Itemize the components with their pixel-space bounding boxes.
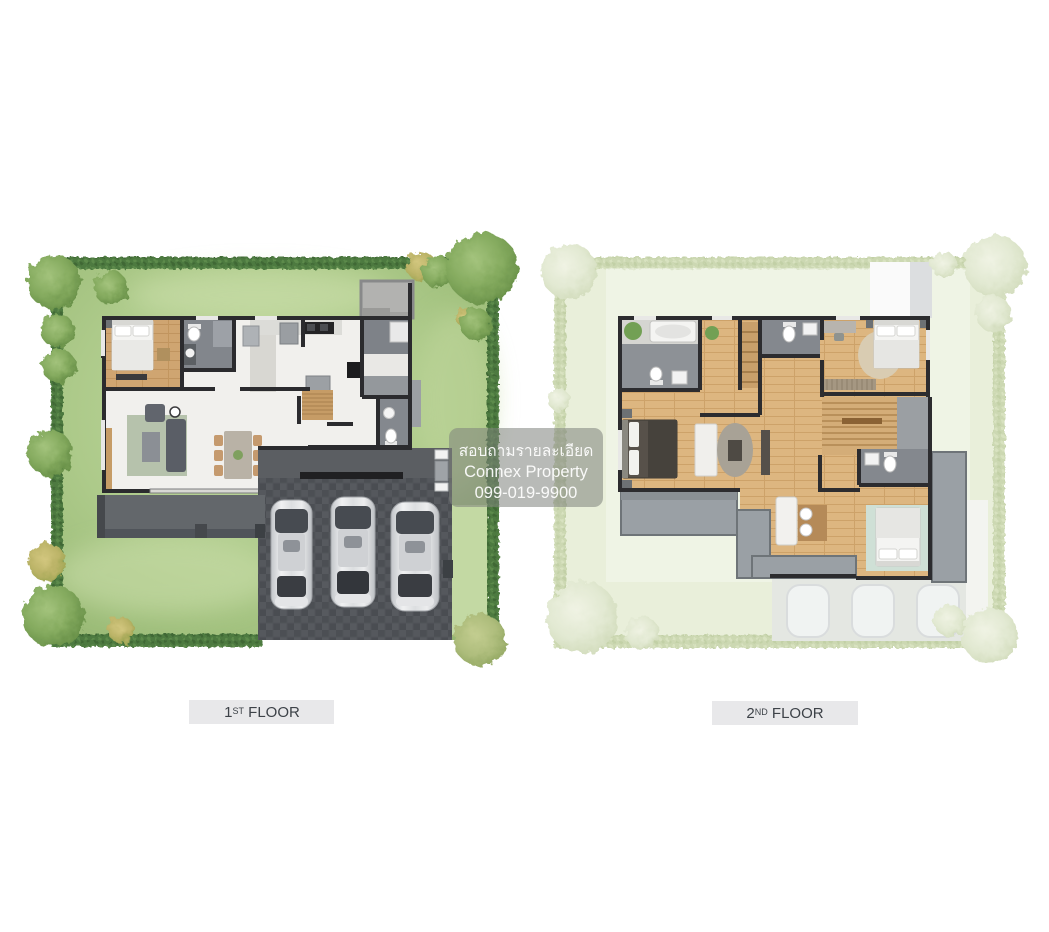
svg-text:099-019-9900: 099-019-9900 bbox=[475, 484, 578, 502]
svg-text:Connex Property: Connex Property bbox=[464, 463, 589, 481]
svg-text:สอบถามรายละเอียด: สอบถามรายละเอียด bbox=[459, 443, 594, 460]
